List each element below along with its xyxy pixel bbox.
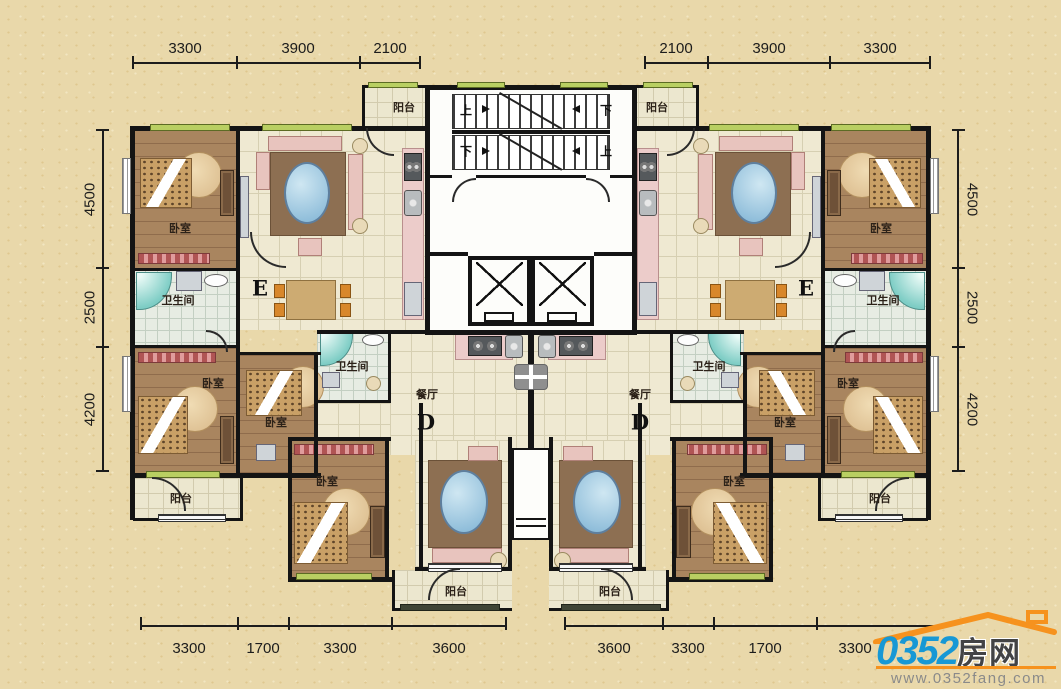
dimension-tick	[96, 129, 109, 131]
dimension-value: 3900	[258, 40, 338, 57]
dimension-tick	[132, 56, 134, 69]
dimension-tick	[140, 617, 142, 630]
dimension-value: 3300	[145, 40, 225, 57]
dimension-tick	[96, 267, 109, 269]
dimension-tick	[564, 617, 566, 630]
dimension-value: 3600	[574, 640, 654, 657]
dimension-tick	[662, 617, 664, 630]
dimension-value: 2500	[82, 282, 99, 334]
logo-website: www.0352fang.com	[876, 670, 1061, 687]
dimension-tick	[237, 617, 239, 630]
dimension-value: 4200	[964, 384, 981, 436]
dimension-tick	[419, 56, 421, 69]
dimension-tick	[952, 267, 965, 269]
dimension-tick	[505, 617, 507, 630]
dimension-tick	[952, 129, 965, 131]
dimension-value: 1700	[725, 640, 805, 657]
dimension-tick	[96, 470, 109, 472]
dimension-value: 3900	[729, 40, 809, 57]
dimension-line	[133, 62, 420, 64]
site-logo: 0352房网 www.0352fang.com	[868, 610, 1061, 689]
dimension-value: 4500	[964, 174, 981, 226]
dimension-value: 4500	[82, 174, 99, 226]
dimension-value: 2500	[964, 282, 981, 334]
dimension-tick	[644, 56, 646, 69]
dimension-line	[957, 130, 959, 471]
dimension-value: 3300	[840, 40, 920, 57]
dimension-tick	[952, 470, 965, 472]
logo-underline	[876, 666, 1056, 669]
dimension-value: 4200	[82, 384, 99, 436]
dimension-value: 3300	[300, 640, 380, 657]
dimension-tick	[929, 56, 931, 69]
dimension-value: 3600	[409, 640, 489, 657]
floor-plan: 卧室 卧室 卧室 卧室 卧室 卧室 卧室 卧室 卫生间 卫生间 卫生间 卫生间 …	[0, 0, 1061, 689]
dimension-tick	[952, 346, 965, 348]
dimension-tick	[359, 56, 361, 69]
dimension-tick	[713, 617, 715, 630]
dimension-tick	[288, 617, 290, 630]
dimension-chains: 3300 3900 2100 2100 3900 3300 4500 2500 …	[0, 0, 1061, 689]
dimension-line	[102, 130, 104, 471]
dimension-line	[141, 625, 506, 627]
dimension-tick	[816, 617, 818, 630]
dimension-value: 3300	[149, 640, 229, 657]
dimension-value: 2100	[636, 40, 716, 57]
dimension-value: 2100	[350, 40, 430, 57]
dimension-line	[645, 62, 930, 64]
dimension-value: 1700	[223, 640, 303, 657]
dimension-tick	[391, 617, 393, 630]
dimension-tick	[96, 346, 109, 348]
dimension-tick	[236, 56, 238, 69]
dimension-tick	[829, 56, 831, 69]
dimension-tick	[707, 56, 709, 69]
dimension-value: 3300	[648, 640, 728, 657]
